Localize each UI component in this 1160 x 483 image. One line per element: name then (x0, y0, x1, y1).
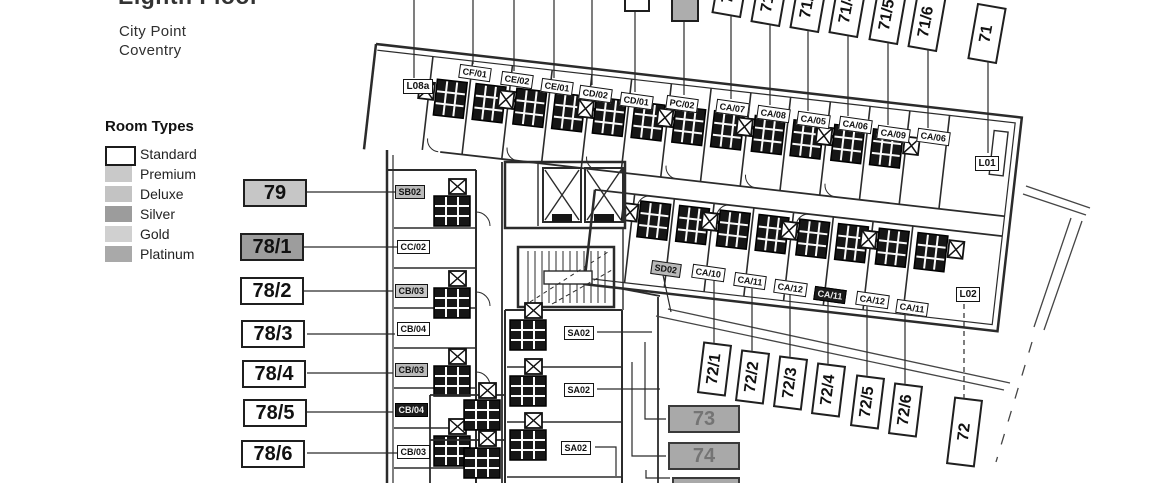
room-callout-73: 73 (668, 405, 740, 433)
plan-label-cc02: CC/02 (397, 240, 430, 254)
floor-plan-drawing (0, 0, 1160, 483)
plan-label-sb02: SB02 (395, 185, 425, 199)
room-callout-79: 79 (243, 179, 307, 207)
legend-label-gold: Gold (140, 226, 170, 242)
misc-leaders (595, 275, 671, 476)
plan-label-cb03c: CB/03 (397, 445, 430, 459)
room-callout-78-3: 78/3 (241, 320, 305, 348)
room-callout-75: 75 (672, 477, 740, 483)
legend-swatch-standard (105, 146, 136, 166)
legend-label-deluxe: Deluxe (140, 186, 184, 202)
legend-swatch-deluxe (105, 186, 132, 202)
room-callout-78-4: 78/4 (242, 360, 306, 388)
plan-label-sa02a: SA02 (564, 326, 594, 340)
room-callout-78-5: 78/5 (243, 399, 307, 427)
plan-label-sa02c: SA02 (561, 441, 591, 455)
building-name: City Point (119, 23, 186, 40)
plan-label-cb03b: CB/03 (395, 363, 428, 377)
page-title: Eighth Floor (118, 0, 259, 10)
legend-label-premium: Premium (140, 166, 196, 182)
legend-label-standard: Standard (140, 146, 197, 162)
legend-swatch-silver (105, 206, 132, 222)
legend-title: Room Types (105, 118, 194, 135)
cut-off-callout-white (624, 0, 650, 12)
plan-label-l01: L01 (975, 156, 999, 171)
side-callout-leaders (632, 342, 670, 478)
plan-label-cb04a: CB/04 (397, 322, 430, 336)
legend-label-platinum: Platinum (140, 246, 194, 262)
legend-swatch-platinum (105, 246, 132, 262)
plan-label-sa02b: SA02 (564, 383, 594, 397)
legend-swatch-premium (105, 166, 132, 182)
legend-label-silver: Silver (140, 206, 175, 222)
floor-plan-page: Eighth Floor City Point Coventry Room Ty… (0, 0, 1160, 483)
plan-label-l08a: L08a (403, 79, 433, 94)
room-callout-74: 74 (668, 442, 740, 470)
left-callout-leaders (304, 192, 397, 453)
legend-swatch-gold (105, 226, 132, 242)
plan-label-cb03a: CB/03 (395, 284, 428, 298)
plan-label-cb04b: CB/04 (395, 403, 428, 417)
room-callout-78-2: 78/2 (240, 277, 304, 305)
cut-off-callout-gray (671, 0, 699, 22)
room-callout-78-1: 78/1 (240, 233, 304, 261)
room-callout-78-6: 78/6 (241, 440, 305, 468)
city-name: Coventry (119, 42, 181, 59)
plan-label-l02: L02 (956, 287, 980, 302)
